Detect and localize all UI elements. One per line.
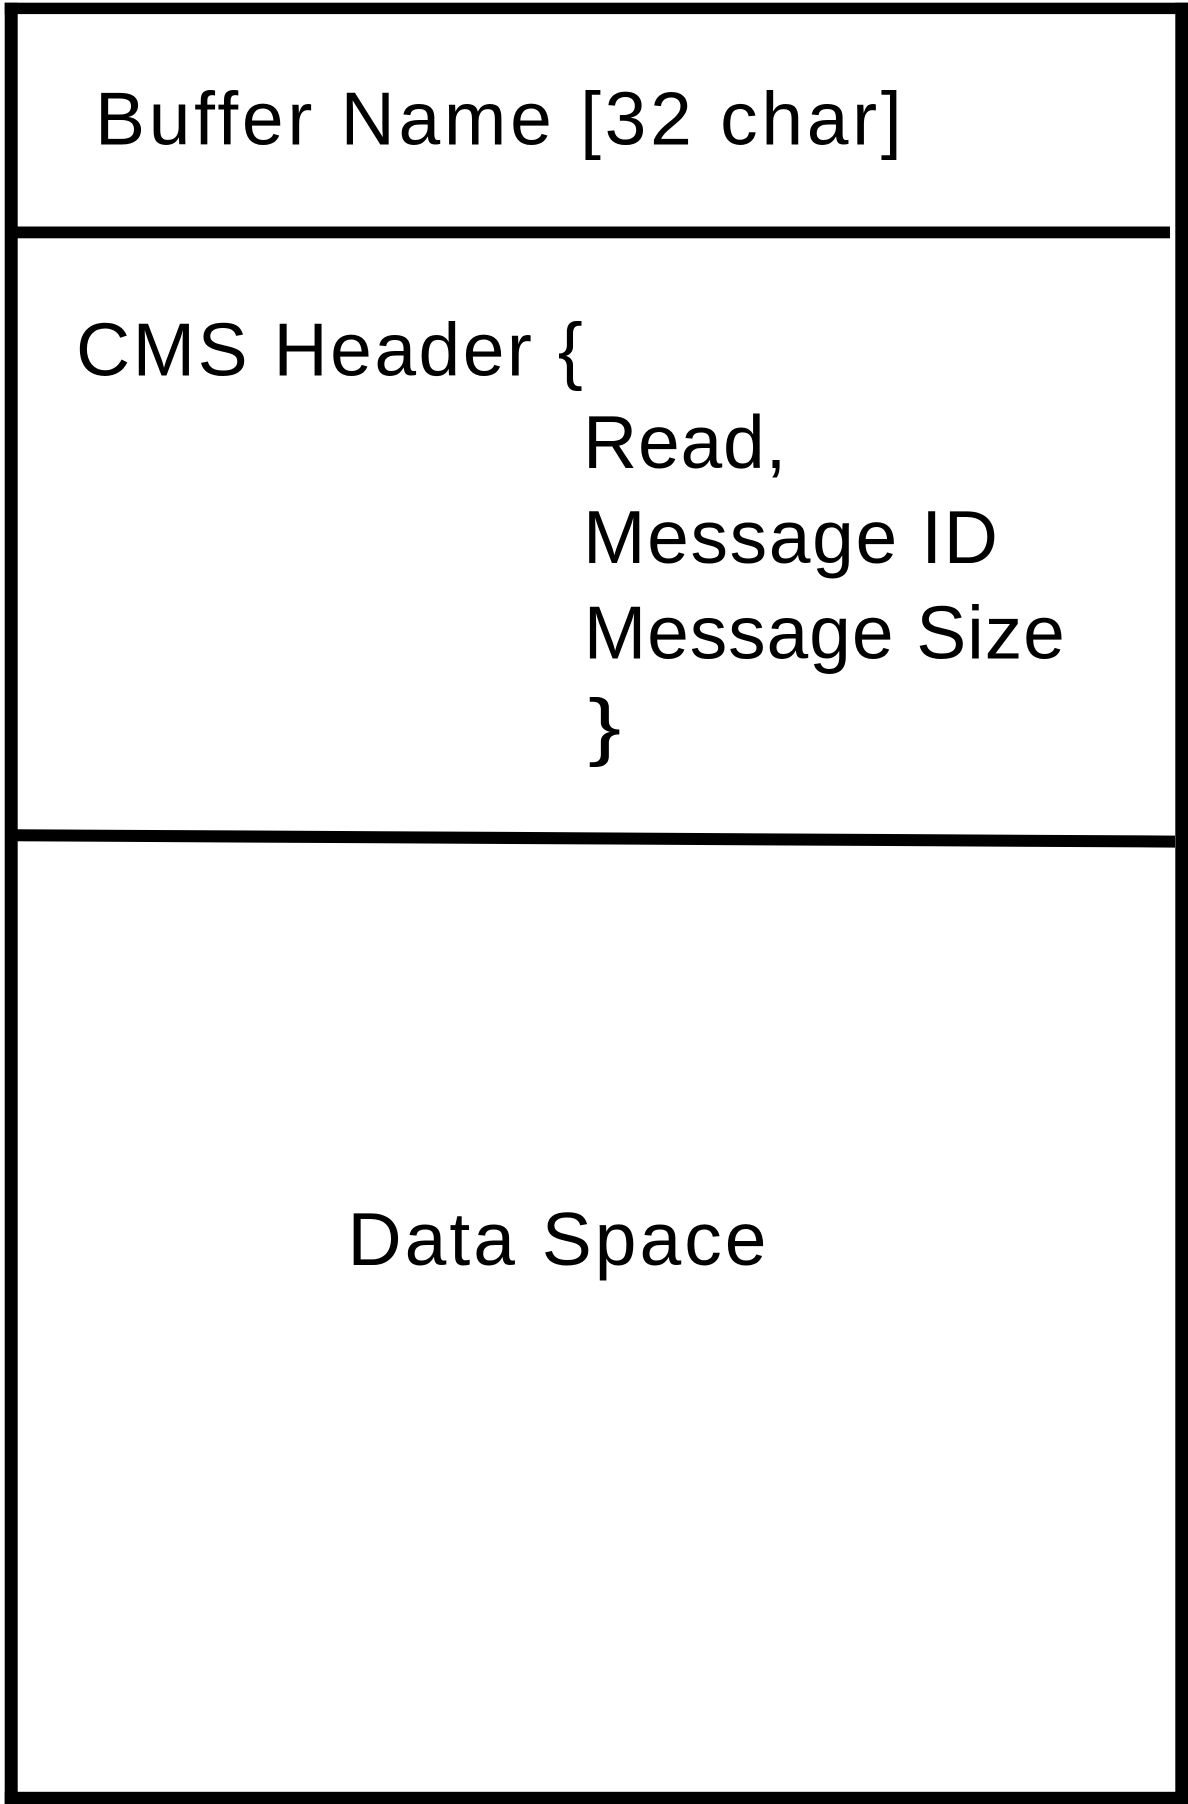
- svg-text:Read,: Read,: [583, 400, 787, 484]
- svg-text:Buffer Name [32 char]: Buffer Name [32 char]: [95, 77, 905, 161]
- svg-text:CMS Header {: CMS Header {: [76, 307, 585, 391]
- svg-text:Message Size: Message Size: [584, 590, 1066, 674]
- svg-text:}: }: [588, 684, 621, 768]
- svg-text:Message ID: Message ID: [583, 495, 1000, 579]
- svg-text:Data Space: Data Space: [348, 1197, 770, 1281]
